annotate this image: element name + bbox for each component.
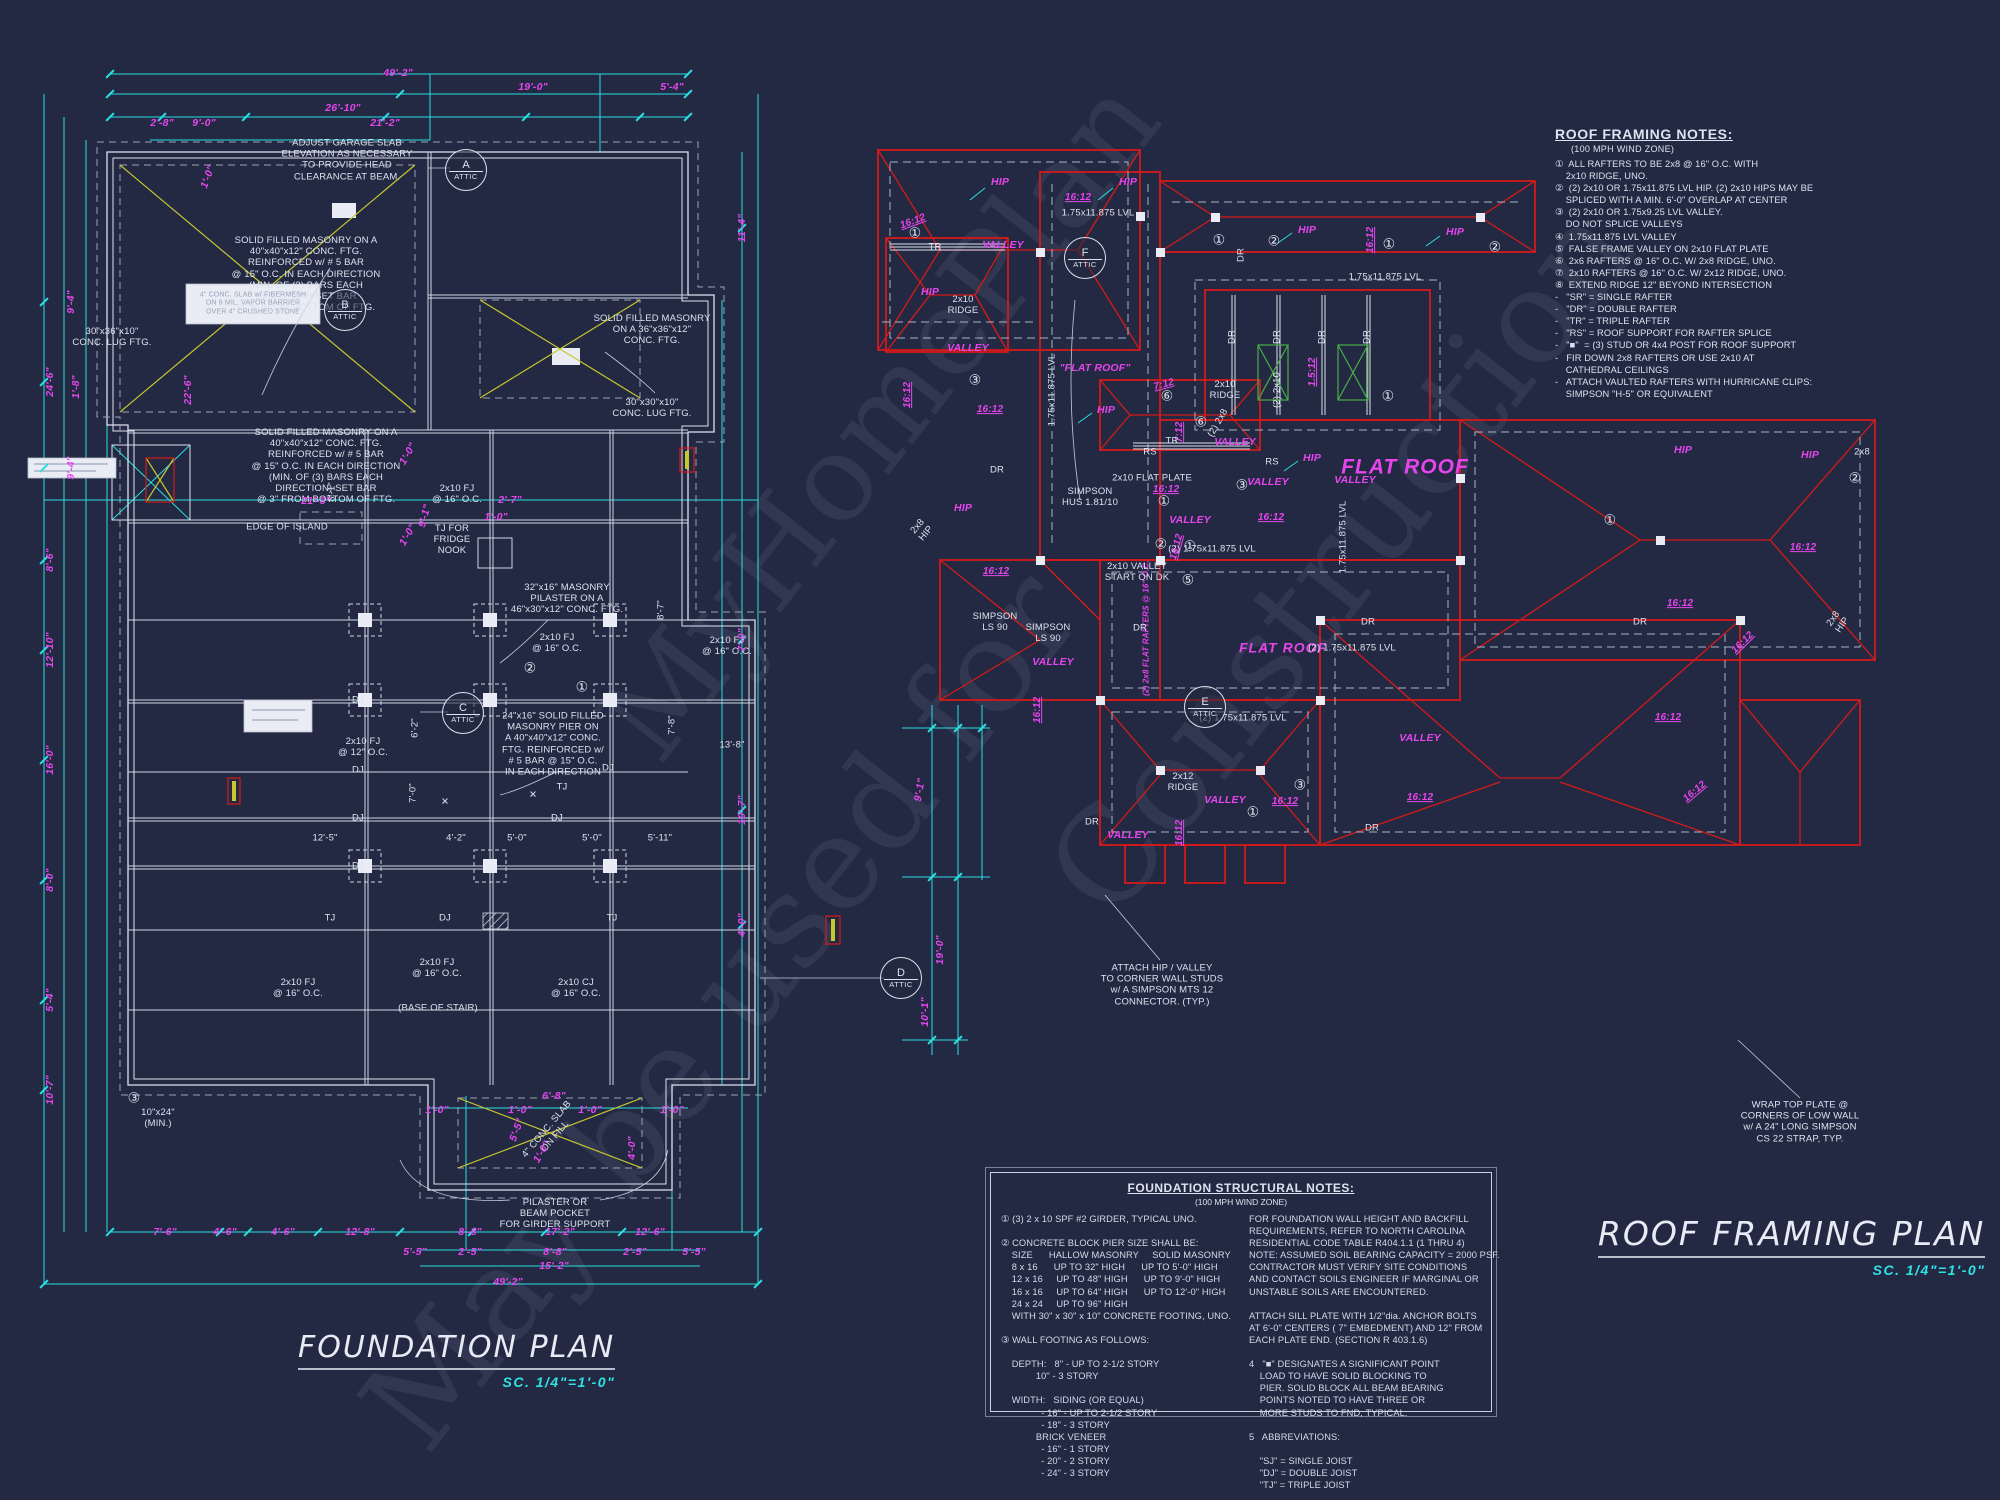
note-line: POINTS NOTED TO HAVE THREE OR [1249, 1394, 1500, 1406]
annotation-label: 16:12 [1032, 697, 1044, 723]
annotation-label: (2) 1.75x11.875 LVL [1168, 543, 1256, 554]
foundation-markers [28, 284, 840, 944]
annotation-label: 2x10 RIDGE [948, 294, 979, 316]
note-line: ATTACH SILL PLATE WITH 1/2"dia. ANCHOR B… [1249, 1310, 1500, 1322]
note-line: SIMPSON "H-5" OR EQUIVALENT [1555, 388, 1875, 400]
foundation-title-block: FOUNDATION PLAN SC. 1/4"=1'-0" [298, 1330, 615, 1390]
annotation-label: 1'-0" [425, 1104, 448, 1116]
annotation-label: ③ [128, 1090, 141, 1107]
note-line: RESIDENTIAL CODE TABLE R404.1.1 (1 THRU … [1249, 1237, 1500, 1249]
annotation-label: 2'-5" [458, 1246, 481, 1258]
attic-section-marker: CATTIC [442, 692, 484, 734]
note-line: 4 "■" DESIGNATES A SIGNIFICANT POINT [1249, 1358, 1500, 1370]
annotation-label: VALLEY [1399, 732, 1441, 744]
annotation-label: 8'-6" [44, 548, 56, 571]
note-line: - FIR DOWN 2x8 RAFTERS OR USE 2x10 AT [1555, 352, 1875, 364]
note-line: UNSTABLE SOILS ARE ENCOUNTERED. [1249, 1286, 1500, 1298]
note-line: 16 x 16 UP TO 64" HIGH UP TO 12'-0" HIGH [1001, 1286, 1231, 1298]
annotation-label: 2x10 FJ @ 16" O.C. [432, 483, 482, 505]
annotation-label: 16:12 [1174, 820, 1186, 846]
annotation-label: 5'-4" [660, 81, 683, 93]
annotation-label: DJ [352, 764, 364, 775]
annotation-label: TR [929, 241, 942, 252]
attic-section-marker: BATTIC [324, 289, 366, 331]
annotation-label: TJ FOR FRIDGE NOOK [434, 523, 471, 557]
annotation-label: EDGE OF ISLAND [246, 521, 328, 532]
note-line: ⑧ EXTEND RIDGE 12" BEYOND INTERSECTION [1555, 279, 1875, 291]
annotation-label: ③ [1294, 777, 1307, 794]
note-line [1249, 1491, 1500, 1500]
annotation-label: 16:12 [1065, 192, 1091, 204]
annotation-label: ⑥ [1161, 388, 1174, 405]
note-line: SIZE HALLOW MASONRY SOLID MASONRY [1001, 1249, 1231, 1261]
annotation-label: ② [524, 660, 537, 677]
attic-marker-word: ATTIC [889, 980, 913, 990]
roof-framing-notes: ROOF FRAMING NOTES: (100 MPH WIND ZONE) … [1555, 126, 1875, 400]
attic-section-marker: EATTIC [1184, 686, 1226, 728]
note-line [1249, 1298, 1500, 1310]
note-line: "TJ" = TRIPLE JOIST [1249, 1479, 1500, 1491]
note-line: - "RS" = ROOF SUPPORT FOR RAFTER SPLICE [1555, 327, 1875, 339]
annotation-label: 16:12 [983, 566, 1009, 578]
annotation-label: 12'-10" [44, 632, 56, 667]
annotation-label: 7'-6" [153, 1226, 176, 1238]
annotation-label: 2x10 CJ @ 16" O.C. [551, 977, 601, 999]
annotation-label: DJ [352, 860, 364, 871]
note-line: - "SR" = SINGLE RAFTER [1555, 291, 1875, 303]
annotation-label: 2x10 FLAT PLATE [1112, 472, 1192, 483]
annotation-label: DR [1085, 816, 1099, 827]
foundation-notes-col1: ① (3) 2 x 10 SPF #2 GIRDER, TYPICAL UNO.… [1001, 1213, 1231, 1479]
note-line: 2x10 RIDGE, UNO. [1555, 170, 1875, 182]
note-line [1249, 1346, 1500, 1358]
foundation-notes-col2: FOR FOUNDATION WALL HEIGHT AND BACKFILLR… [1249, 1213, 1500, 1500]
annotation-label: RS [1143, 446, 1157, 457]
annotation-label: 13'-8" [719, 739, 744, 750]
attic-marker-word: ATTIC [1193, 709, 1217, 719]
note-line: EACH PLATE END. (SECTION R 403.1.6) [1249, 1334, 1500, 1346]
annotation-label: ② [1849, 470, 1862, 487]
annotation-label: 12'-8" [345, 1226, 374, 1238]
annotation-label: VALLEY [1214, 436, 1256, 448]
annotation-label: ⑥ [1195, 414, 1208, 431]
annotation-label: 4'-6" [213, 1226, 236, 1238]
attic-marker-word: ATTIC [451, 715, 475, 725]
annotation-label: 16:12 [1365, 227, 1377, 253]
annotation-label: 2x12 RIDGE [1168, 771, 1199, 793]
annotation-label: HIP [1674, 444, 1692, 456]
annotation-label: 32"x16" MASONRY PILASTER ON A 46"x30"x12… [511, 582, 623, 616]
note-line: 24 x 24 UP TO 96" HIGH [1001, 1298, 1231, 1310]
attic-marker-word: ATTIC [333, 312, 357, 322]
annotation-label: 5'-5" [403, 1246, 426, 1258]
annotation-label: 8'-0" [44, 868, 56, 891]
foundation-notes-title: FOUNDATION STRUCTURAL NOTES: [991, 1181, 1491, 1195]
annotation-label: ② [1155, 536, 1168, 553]
annotation-label: HIP [1446, 226, 1464, 238]
annotation-label: DJ [352, 812, 364, 823]
annotation-label: ① [909, 225, 922, 242]
annotation-label: 5'-11" [648, 832, 672, 843]
annotation-label: DJ [352, 694, 364, 705]
note-line: 5 ABBREVIATIONS: [1249, 1431, 1500, 1443]
attic-marker-letter: F [1068, 247, 1102, 260]
note-line: "DJ" = DOUBLE JOIST [1249, 1467, 1500, 1479]
annotation-label: DR [990, 464, 1004, 475]
annotation-label: VALLEY [1204, 794, 1246, 806]
annotation-label: 1.75x11.875 LVL [1349, 271, 1422, 282]
annotation-label: VALLEY [1032, 656, 1074, 668]
note-line: 8 x 16 UP TO 32" HIGH UP TO 5'-0" HIGH [1001, 1261, 1231, 1273]
note-line [1001, 1225, 1231, 1237]
annotation-label: 10"x24" (MIN.) [141, 1107, 175, 1129]
foundation-plan-title: FOUNDATION PLAN [298, 1330, 615, 1370]
annotation-label: 5'-0" [507, 832, 527, 843]
annotation-label: WRAP TOP PLATE @ CORNERS OF LOW WALL w/ … [1741, 1100, 1860, 1145]
annotation-label: 16:12 [1667, 598, 1693, 610]
annotation-label: DR [1361, 330, 1372, 344]
annotation-label: DR [1361, 616, 1375, 627]
annotation-label: 2x10 VALLEY START ON DK [1105, 561, 1169, 583]
annotation-label: (2) 2x10 [1271, 372, 1282, 408]
annotation-label: 21'-3" [301, 495, 330, 507]
note-line: - "DR" = DOUBLE RAFTER [1555, 303, 1875, 315]
annotation-label: 9'-4" [65, 290, 77, 313]
annotation-label: (2) 1.75x11.875 LVL [1308, 642, 1396, 653]
note-line: - 16" - UP TO 2-1/2 STORY [1001, 1407, 1231, 1419]
annotation-label: 5'-5" [682, 1246, 705, 1258]
annotation-label: 10'-1" [919, 997, 931, 1026]
annotation-label: 2'-8" [150, 117, 173, 129]
note-line: PIER. SOLID BLOCK ALL BEAM BEARING [1249, 1382, 1500, 1394]
note-line: DEPTH: 8" - UP TO 2-1/2 STORY [1001, 1358, 1231, 1370]
foundation-plan-scale: SC. 1/4"=1'-0" [298, 1374, 615, 1390]
annotation-label: 24'-6" [44, 367, 56, 396]
annotation-label: ③ [969, 372, 982, 389]
annotation-label: TR [1166, 435, 1179, 446]
annotation-label: DR [1226, 330, 1237, 344]
annotation-label: 2x10 FJ @ 16" O.C. [532, 632, 582, 654]
annotation-label: 7'-0" [407, 783, 418, 803]
annotation-label: ADJUST GARAGE SLAB ELEVATION AS NECESSAR… [281, 138, 412, 183]
annotation-label: 16:12 [1655, 712, 1681, 724]
note-line: ⑥ 2x6 RAFTERS @ 16" O.C. W/ 2x8 RIDGE, U… [1555, 255, 1875, 267]
note-line: WITH 30" x 30" x 10" CONCRETE FOOTING, U… [1001, 1310, 1231, 1322]
annotation-label: DJ [602, 762, 614, 773]
annotation-label: HIP [1303, 452, 1321, 464]
roof-plan-title: ROOF FRAMING PLAN [1598, 1214, 1985, 1258]
annotation-label: 17'-2" [545, 1226, 574, 1238]
attic-marker-letter: C [446, 702, 480, 715]
annotation-label: 4'-6" [271, 1226, 294, 1238]
annotation-label: 1'-0" [508, 1104, 531, 1116]
note-line [1001, 1346, 1231, 1358]
annotation-label: DJ [439, 912, 451, 923]
note-line: ⑤ FALSE FRAME VALLEY ON 2x10 FLAT PLATE [1555, 243, 1875, 255]
note-line: SPLICED WITH A MIN. 6'-0" OVERLAP AT CEN… [1555, 194, 1875, 206]
annotation-label: 2'-7" [498, 494, 521, 506]
annotation-label: TJ [607, 912, 618, 923]
note-line: - 24" - 3 STORY [1001, 1467, 1231, 1479]
note-line: BRICK VENEER [1001, 1431, 1231, 1443]
annotation-label: 8'-8" [458, 1226, 481, 1238]
annotation-label: 7'-8" [666, 715, 677, 735]
note-line: 12 x 16 UP TO 48" HIGH UP TO 9'-0" HIGH [1001, 1273, 1231, 1285]
note-line: WIDTH: SIDING (OR EQUAL) [1001, 1394, 1231, 1406]
note-line: FOR FOUNDATION WALL HEIGHT AND BACKFILL [1249, 1213, 1500, 1225]
annotation-label: 2x10 FJ @ 16" O.C. [273, 977, 323, 999]
roof-title-block: ROOF FRAMING PLAN SC. 1/4"=1'-0" [1598, 1214, 1985, 1278]
annotation-label: FLAT ROOF [1341, 456, 1469, 481]
annotation-label: DR [1133, 622, 1147, 633]
annotation-label: 2'-5" [623, 1246, 646, 1258]
annotation-label: 7'-0" [736, 628, 748, 651]
annotation-label: 16'-0" [44, 745, 56, 774]
annotation-label: 10'-7" [736, 795, 748, 824]
annotation-label: 16:12 [1407, 792, 1433, 804]
annotation-label: ① [576, 679, 589, 696]
attic-marker-word: ATTIC [454, 172, 478, 182]
annotation-label: HIP [1298, 224, 1316, 236]
annotation-label: 16:12 [1258, 512, 1284, 524]
annotation-label: ⑤ [1182, 572, 1195, 589]
annotation-label: 8'-8" [543, 1246, 566, 1258]
annotation-label: VALLEY [982, 239, 1024, 251]
annotation-label: VALLEY [1107, 829, 1149, 841]
annotation-label: "FLAT ROOF" [1060, 362, 1131, 374]
annotation-label: SIMPSON HUS 1.81/10 [1062, 486, 1118, 508]
annotation-label: 19'-0" [934, 935, 946, 964]
attic-section-marker: AATTIC [445, 149, 487, 191]
foundation-dimension-lines [44, 74, 758, 1284]
annotation-label: 4" CONC. SLAB w/ FIBERMESH ON 6 MIL. VAP… [200, 292, 306, 317]
annotation-label: 12'-6" [635, 1226, 664, 1238]
annotation-label: 5'-0" [582, 832, 602, 843]
annotation-label: ① [1247, 804, 1260, 821]
annotation-label: 16:12 [1272, 796, 1298, 808]
annotation-label: 22'-6" [182, 375, 194, 404]
annotation-label: DR [1633, 616, 1647, 627]
annotation-label: HIP [991, 176, 1009, 188]
note-line: ① (3) 2 x 10 SPF #2 GIRDER, TYPICAL UNO. [1001, 1213, 1231, 1225]
annotation-label: 4'-0" [736, 913, 748, 936]
annotation-label: ① [1213, 232, 1226, 249]
annotation-label: 2x10 FJ @ 16" O.C. [412, 957, 462, 979]
foundation-structural-notes: FOUNDATION STRUCTURAL NOTES: (100 MPH WI… [990, 1172, 1492, 1412]
annotation-label: ① [1158, 493, 1171, 510]
annotation-label: TJ [325, 912, 336, 923]
annotation-label: SIMPSON LS 90 [1026, 622, 1071, 644]
annotation-label: 21'-2" [370, 117, 399, 129]
note-line: ④ 1.75x11.875 LVL VALLEY [1555, 231, 1875, 243]
roof-notes-title: ROOF FRAMING NOTES: [1555, 126, 1875, 142]
annotation-label: 10'-7" [44, 1075, 56, 1104]
annotation-label: HIP [1801, 449, 1819, 461]
note-line: - 16" - 1 STORY [1001, 1443, 1231, 1455]
annotation-label: 12'-5" [312, 832, 337, 843]
annotation-label: 16:12 [977, 404, 1003, 416]
annotation-label: ✕ [529, 789, 537, 800]
note-line: - 18" - 3 STORY [1001, 1419, 1231, 1431]
annotation-label: ① [1184, 538, 1197, 555]
annotation-label: 2x10 FJ @ 12" O.C. [338, 736, 388, 758]
note-line: AND CONTACT SOILS ENGINEER IF MARGINAL O… [1249, 1273, 1500, 1285]
annotation-label: 5'-4" [44, 988, 56, 1011]
note-line [1001, 1322, 1231, 1334]
annotation-label: 49'-2" [493, 1276, 522, 1288]
note-line: DO NOT SPLICE VALLEYS [1555, 218, 1875, 230]
attic-marker-word: ATTIC [1073, 260, 1097, 270]
note-line: ① ALL RAFTERS TO BE 2x8 @ 16" O.C. WITH [1555, 158, 1875, 170]
annotation-label: VALLEY [1169, 514, 1211, 526]
roof-notes-subtitle: (100 MPH WIND ZONE) [1571, 144, 1875, 154]
annotation-label: 30"x30"x10" CONC. LUG FTG. [612, 397, 691, 419]
attic-section-marker: DATTIC [880, 957, 922, 999]
annotation-label: DR [1235, 248, 1246, 262]
annotation-label: 15'-2" [539, 1260, 568, 1272]
note-line: CONTRACTOR MUST VERIFY SITE CONDITIONS [1249, 1261, 1500, 1273]
note-line: ② (2) 2x10 OR 1.75x11.875 LVL HIP. (2) 2… [1555, 182, 1875, 194]
annotation-label: DR [1365, 822, 1379, 833]
annotation-label: 9'-0" [192, 117, 215, 129]
annotation-label: 1.75x11.875 LVL [1337, 501, 1348, 574]
attic-marker-letter: E [1188, 696, 1222, 709]
annotation-label: 6'-2" [409, 718, 420, 738]
annotation-label: 4'-2" [446, 832, 466, 843]
note-line: AT 6'-0" CENTERS ( 7" EMBEDMENT) AND 12"… [1249, 1322, 1500, 1334]
annotation-label: 1'-0" [484, 511, 507, 523]
annotation-label: HIP [921, 286, 939, 298]
note-line: - ATTACH VAULTED RAFTERS WITH HURRICANE … [1555, 376, 1875, 388]
blueprint-sheet: MyHomePlanMay be used forConstruction [0, 0, 2000, 1500]
note-line: 10" - 3 STORY [1001, 1370, 1231, 1382]
annotation-label: SIMPSON LS 90 [973, 611, 1018, 633]
annotation-label: ✕ [441, 796, 449, 807]
note-line [1001, 1382, 1231, 1394]
foundation-notes-subtitle: (100 MPH WIND ZONE) [991, 1197, 1491, 1207]
annotation-label: 1'-0" [578, 1104, 601, 1116]
attic-section-marker: FATTIC [1064, 237, 1106, 279]
annotation-label: ② [1489, 239, 1502, 256]
attic-marker-letter: D [884, 967, 918, 980]
annotation-label: DR [1271, 330, 1282, 344]
annotation-label: HIP [1097, 404, 1115, 416]
annotation-label: 16:12 [902, 382, 914, 408]
annotation-label: 16:12 [1790, 542, 1816, 554]
note-line: - "■" = (3) STUD OR 4x4 POST FOR ROOF SU… [1555, 339, 1875, 351]
annotation-label: ② [1268, 233, 1281, 250]
note-line [1249, 1443, 1500, 1455]
annotation-label: HIP [1119, 176, 1137, 188]
annotation-label: 1.75x11.875 LVL [1062, 207, 1135, 218]
annotation-label: 24"x16" SOLID FILLED MASONRY PIER ON A 4… [502, 710, 604, 777]
annotation-label: 49'-2" [383, 67, 412, 79]
annotation-label: 1'-8" [70, 375, 82, 398]
annotation-label: VALLEY [947, 342, 989, 354]
note-line: "SJ" = SINGLE JOIST [1249, 1455, 1500, 1467]
annotation-label: 4'-0" [626, 1136, 638, 1159]
annotation-label: 9'-4" [65, 456, 77, 479]
attic-marker-letter: A [449, 159, 483, 172]
annotation-label: 26'-10" [325, 102, 360, 114]
roof-plan-scale: SC. 1/4"=1'-0" [1598, 1262, 1985, 1278]
annotation-label: DJ [551, 812, 563, 823]
note-line: REQUIREMENTS, REFER TO NORTH CAROLINA [1249, 1225, 1500, 1237]
annotation-label: ATTACH HIP / VALLEY TO CORNER WALL STUDS… [1101, 963, 1223, 1008]
annotation-label: 11'-4" [736, 214, 748, 243]
annotation-label: (BASE OF STAIR) [398, 1002, 478, 1013]
note-line: - "TR" = TRIPLE RAFTER [1555, 315, 1875, 327]
roof-notes-body: ① ALL RAFTERS TO BE 2x8 @ 16" O.C. WITH … [1555, 158, 1875, 400]
note-line: CATHEDRAL CEILINGS [1555, 364, 1875, 376]
annotation-label: ① [1382, 388, 1395, 405]
annotation-label: ① [1604, 512, 1617, 529]
note-line [1249, 1419, 1500, 1431]
note-line: ② CONCRETE BLOCK PIER SIZE SHALL BE: [1001, 1237, 1231, 1249]
annotation-label: ① [1383, 236, 1396, 253]
annotation-label: 1'-0" [660, 1104, 683, 1116]
annotation-label: TJ [557, 781, 568, 792]
note-line: NOTE: ASSUMED SOIL BEARING CAPACITY = 20… [1249, 1249, 1500, 1261]
annotation-label: 19'-0" [518, 81, 547, 93]
annotation-label: 2x10 RIDGE [1210, 379, 1241, 401]
annotation-label: 1.75x11.875 LVL [1046, 354, 1057, 427]
annotation-label: ③ [1236, 477, 1249, 494]
note-line: ③ WALL FOOTING AS FOLLOWS: [1001, 1334, 1231, 1346]
annotation-label: 6'-8" [542, 1090, 565, 1102]
note-line: ③ (2) 2x10 OR 1.75x9.25 LVL VALLEY. [1555, 206, 1875, 218]
annotation-label: SOLID FILLED MASONRY ON A 36"x36"x12" CO… [594, 313, 711, 347]
annotation-label: 1.5:12 [1307, 357, 1319, 386]
note-line: ⑦ 2x10 RAFTERS @ 16" O.C. W/ 2x12 RIDGE,… [1555, 267, 1875, 279]
note-line: MORE STUDS TO FND, TYPICAL. [1249, 1407, 1500, 1419]
note-line: - 20" - 2 STORY [1001, 1455, 1231, 1467]
annotation-label: 30"x36"x10" CONC. LUG FTG. [72, 326, 151, 348]
annotation-label: VALLEY [1247, 476, 1289, 488]
note-line: LOAD TO HAVE SOLID BLOCKING TO [1249, 1370, 1500, 1382]
annotation-label: 8'-7" [655, 600, 666, 620]
annotation-label: RS [1265, 456, 1279, 467]
annotation-label: HIP [954, 502, 972, 514]
annotation-label: DR [1316, 330, 1327, 344]
attic-marker-letter: B [328, 299, 362, 312]
annotation-label: 2x8 [1854, 446, 1870, 457]
